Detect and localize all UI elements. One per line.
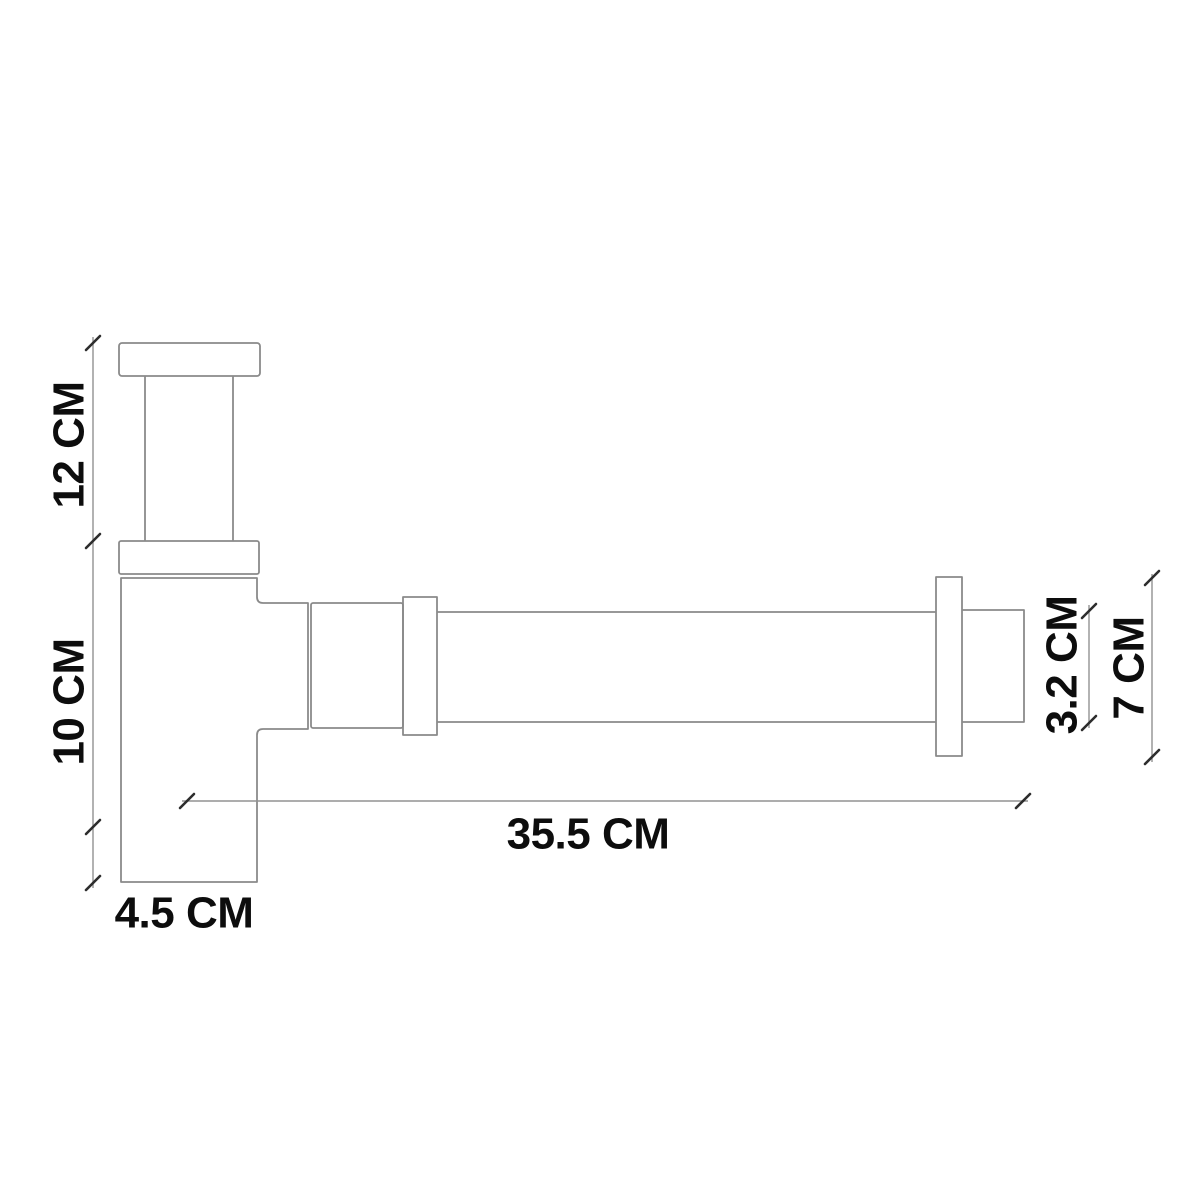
trap-body — [121, 578, 308, 882]
wall-flange — [936, 577, 962, 756]
dim-label-pipe-diameter: 3.2 CM — [1038, 596, 1087, 735]
tailpiece-tube — [145, 376, 233, 541]
dim-label-body-width: 4.5 CM — [115, 889, 254, 938]
dimension-lines-group — [86, 336, 1159, 890]
outlet-nut — [311, 603, 403, 728]
drawing-canvas: 12 CM 10 CM 4.5 CM 35.5 CM 3.2 CM 7 CM — [0, 0, 1200, 1200]
dimension-labels-group: 12 CM 10 CM 4.5 CM 35.5 CM 3.2 CM 7 CM — [45, 381, 1154, 937]
outlet-flange-ring — [403, 597, 437, 735]
compression-collar — [119, 541, 259, 574]
dim-label-tailpiece-height: 12 CM — [45, 381, 94, 508]
bottle-trap-diagram: 12 CM 10 CM 4.5 CM 35.5 CM 3.2 CM 7 CM — [0, 0, 1200, 1200]
dim-label-horizontal-length: 35.5 CM — [507, 810, 670, 859]
dim-label-body-height: 10 CM — [45, 638, 94, 765]
horizontal-pipe — [437, 612, 936, 722]
tailpiece-top-flange — [119, 343, 260, 376]
pipe-outlet-stub — [962, 610, 1024, 722]
dim-label-flange-height: 7 CM — [1105, 616, 1154, 719]
